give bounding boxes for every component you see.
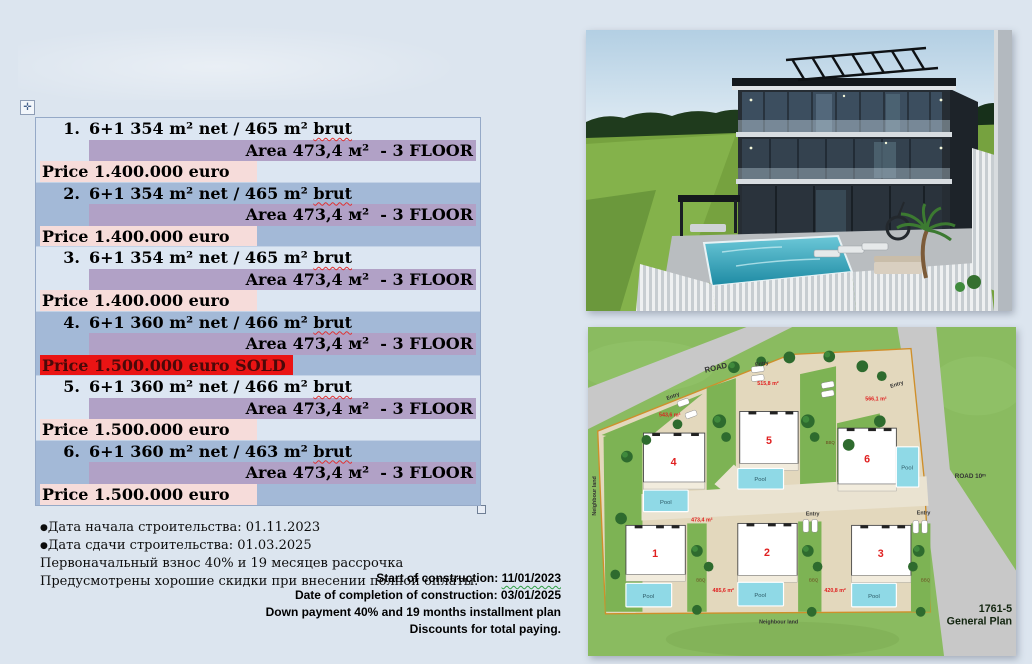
unit-spec-text: 6+1 354 m² net / 465 m² [89, 119, 313, 138]
lot-area-label: 515,8 m² [757, 381, 779, 387]
ru-note-text: Дата начала строительства: 01.11.2023 [48, 520, 320, 535]
ru-note-line: ●Дата сдачи строительства: 01.03.2025 [40, 537, 478, 555]
price-line: Price 1.500.000 euro [36, 484, 480, 506]
table-row: 5. 6+1 360 m² net / 466 m² brut Area 473… [36, 376, 480, 441]
unit-spec-line: 1. 6+1 354 m² net / 465 m² brut [36, 118, 480, 140]
unit-spec-text: 6+1 360 m² net / 466 m² [89, 313, 313, 332]
neighbour-land-left: Neighbour land [592, 476, 598, 516]
area-highlight: Area 473,4 м² - 3 FLOOR [89, 462, 476, 484]
price-line: Price 1.400.000 euro [36, 226, 480, 248]
unit-spec-flagged: brut [313, 119, 352, 138]
price-highlight: Price 1.500.000 euro SOLD [40, 355, 293, 376]
unit-spec-text: 6+1 354 m² net / 465 m² [89, 248, 313, 267]
svg-text:3: 3 [878, 548, 884, 560]
table-row: 6. 6+1 360 m² net / 463 m² brut Area 473… [36, 441, 480, 506]
row-index: 6. [36, 441, 80, 463]
unit-spec-line: 3. 6+1 354 m² net / 465 m² brut [36, 247, 480, 269]
lot-area-label: 485,6 m² [713, 588, 735, 594]
bullet-glyph: ● [40, 523, 48, 533]
pool-label: Pool [642, 594, 654, 600]
pool-label: Pool [660, 500, 672, 506]
table-resize-handle[interactable] [477, 505, 486, 514]
price-highlight: Price 1.400.000 euro [40, 161, 257, 182]
price-line: Price 1.400.000 euro [36, 290, 480, 312]
en-start-date: 11/01/2023 [502, 571, 561, 585]
bbq-label: BBQ [809, 577, 819, 582]
entry-label: Entry [806, 512, 820, 518]
unit-spec-flagged: brut [313, 248, 352, 267]
ru-note-text: Дата сдачи строительства: 01.03.2025 [48, 538, 312, 553]
entry-label: Entry [917, 511, 931, 517]
bbq-label: BBQ [696, 577, 706, 582]
en-note-line: Discounts for total paying. [266, 621, 561, 638]
price-highlight: Price 1.400.000 euro [40, 226, 257, 247]
svg-text:1: 1 [652, 548, 658, 560]
page-watermark [18, 26, 458, 100]
unit-spec-line: 6. 6+1 360 m² net / 463 m² brut [36, 441, 480, 463]
plan-name: General Plan [947, 616, 1012, 628]
ru-note-text: Первоначальный взнос 40% и 19 месяцев ра… [40, 556, 403, 571]
site-plan-art: ROAD ROAD 10ᵐ Entry Entry Entry Entry En… [588, 327, 1016, 656]
table-row: 2. 6+1 354 m² net / 465 m² brut Area 473… [36, 183, 480, 248]
row-index: 2. [36, 183, 80, 205]
unit-spec-text: 6+1 360 m² net / 463 m² [89, 442, 313, 461]
price-highlight: Price 1.500.000 euro [40, 419, 257, 440]
area-highlight: Area 473,4 м² - 3 FLOOR [89, 333, 476, 355]
outdoor-sofa [874, 262, 922, 274]
plan-code: 1761-5 [979, 603, 1012, 615]
svg-text:2: 2 [764, 547, 770, 559]
site-plan-image[interactable]: ROAD ROAD 10ᵐ Entry Entry Entry Entry En… [588, 327, 1016, 656]
pool-label: Pool [754, 477, 766, 483]
unit-spec-flagged: brut [313, 442, 352, 461]
en-note-line: Down payment 40% and 19 months installme… [266, 604, 561, 621]
price-line: Price 1.400.000 euro [36, 161, 480, 183]
balcony-rail-3 [738, 120, 950, 134]
area-highlight: Area 473,4 м² - 3 FLOOR [89, 269, 476, 291]
en-note-line: Date of completion of construction: 03/0… [266, 587, 561, 604]
pool-label: Pool [901, 465, 913, 471]
svg-text:4: 4 [671, 456, 677, 468]
lot-area-label: 420,8 m² [824, 588, 846, 594]
price-line: Price 1.500.000 euro [36, 419, 480, 441]
area-highlight: Area 473,4 м² - 3 FLOOR [89, 398, 476, 420]
table-move-handle[interactable]: ✛ [20, 100, 35, 115]
row-index: 4. [36, 312, 80, 334]
ru-note-line: ●Дата начала строительства: 01.11.2023 [40, 519, 478, 537]
villa-render-image[interactable] [586, 30, 1012, 311]
price-highlight: Price 1.500.000 euro [40, 484, 257, 505]
document-canvas: { "listing_table": { "move_handle_icon":… [0, 0, 1032, 664]
pool-label: Pool [868, 594, 880, 600]
bbq-label: BBQ [826, 440, 836, 445]
area-highlight: Area 473,4 м² - 3 FLOOR [89, 140, 476, 162]
row-index: 3. [36, 247, 80, 269]
photo-right-band [998, 30, 1012, 311]
unit-spec-line: 5. 6+1 360 m² net / 466 m² brut [36, 376, 480, 398]
neighbour-land-bottom: Neighbour land [759, 620, 798, 626]
lot-area-label: 566,1 m² [865, 397, 887, 403]
notes-english: Start of construction: 11/01/2023 Date o… [266, 570, 561, 638]
table-row: 4. 6+1 360 m² net / 466 m² brut Area 473… [36, 312, 480, 377]
unit-spec-line: 2. 6+1 354 m² net / 465 m² brut [36, 183, 480, 205]
svg-text:5: 5 [766, 435, 772, 447]
road10-label: ROAD 10ᵐ [955, 473, 986, 480]
lot-area-label: 473,4 m² [691, 517, 713, 523]
roof-slab [732, 78, 956, 86]
row-index: 5. [36, 376, 80, 398]
listing-table: 1. 6+1 354 m² net / 465 m² brut Area 473… [35, 117, 481, 506]
villa-render-art [586, 30, 1012, 311]
area-highlight: Area 473,4 м² - 3 FLOOR [89, 204, 476, 226]
price-highlight: Price 1.400.000 euro [40, 290, 257, 311]
pergola-canopy [678, 195, 740, 202]
pool-label: Pool [754, 593, 766, 599]
unit-spec-flagged: brut [313, 377, 352, 396]
price-line: Price 1.500.000 euro SOLD [36, 355, 480, 377]
unit-spec-flagged: brut [313, 313, 352, 332]
unit-spec-text: 6+1 360 m² net / 466 m² [89, 377, 313, 396]
bbq-label: BBQ [921, 577, 931, 582]
unit-spec-line: 4. 6+1 360 m² net / 466 m² brut [36, 312, 480, 334]
table-row: 3. 6+1 354 m² net / 465 m² brut Area 473… [36, 247, 480, 312]
lot-area-label: 543,6 m² [659, 412, 681, 418]
en-note-line: Start of construction: 11/01/2023 [266, 570, 561, 587]
row-index: 1. [36, 118, 80, 140]
unit-spec-text: 6+1 354 m² net / 465 m² [89, 184, 313, 203]
bullet-glyph: ● [40, 541, 48, 551]
table-row: 1. 6+1 354 m² net / 465 m² brut Area 473… [36, 118, 480, 183]
unit-spec-flagged: brut [313, 184, 352, 203]
svg-text:6: 6 [864, 453, 870, 465]
en-start-prefix: Start of construction: [376, 571, 501, 585]
